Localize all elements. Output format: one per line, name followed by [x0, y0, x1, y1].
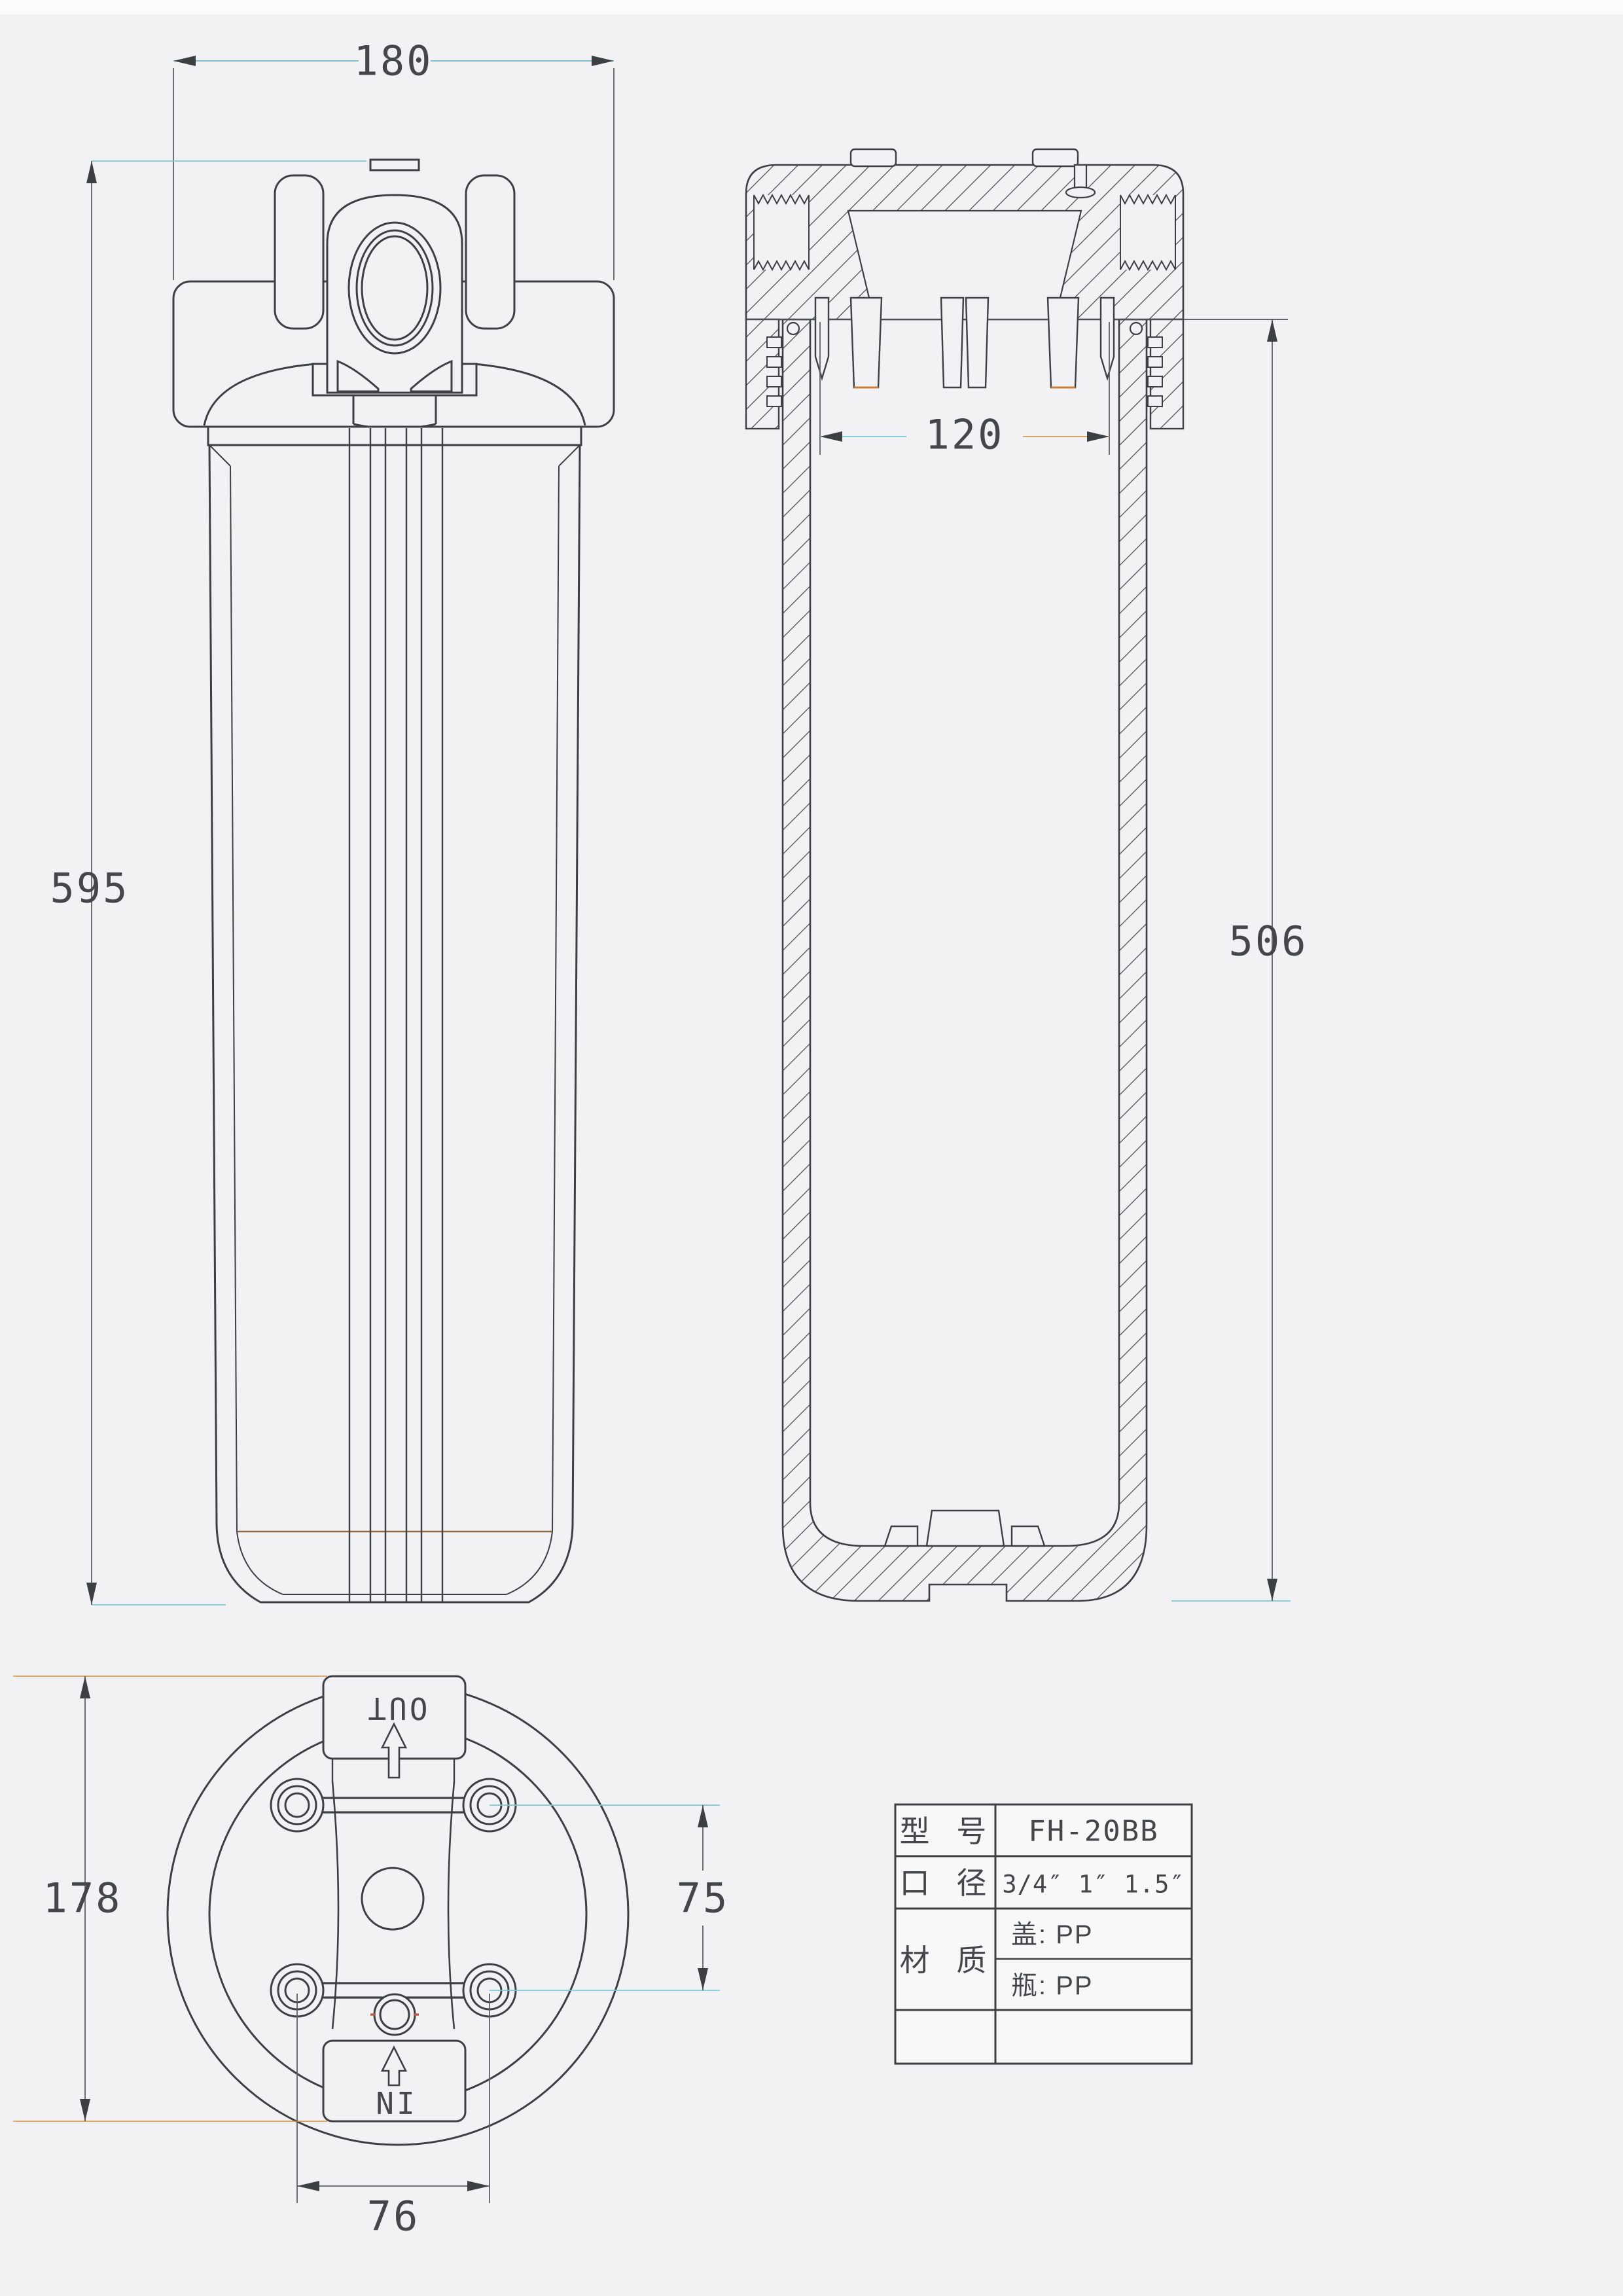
boss-top-tab	[370, 160, 419, 170]
section-bottom-foot-left	[885, 1526, 918, 1546]
bottle-front	[209, 445, 580, 1602]
cap-lug-left	[851, 149, 896, 166]
cap-lug-right	[1033, 149, 1078, 166]
title-caliber-value: 3/4″ 1″ 1.5″	[1002, 1871, 1185, 1899]
bolt-holes	[271, 1779, 516, 2017]
in-label: IN	[373, 2085, 414, 2120]
bottle-ribs	[349, 428, 442, 1602]
title-caliber-label: 口 径	[900, 1866, 996, 1900]
bottom-view: OUT IN 178 75	[13, 1676, 729, 2240]
drawing-sheet: 180 595	[0, 0, 1623, 2296]
technical-drawing: 180 595	[0, 0, 1623, 2296]
cap-ear-right	[466, 175, 514, 329]
out-label: OUT	[365, 1691, 427, 1726]
dim-75-label: 75	[677, 1874, 730, 1922]
center-hole	[362, 1868, 423, 1929]
title-model-value: FH-20BB	[1028, 1815, 1158, 1848]
section-cap-skirt-left	[746, 319, 779, 429]
oring-left	[787, 323, 799, 334]
title-material-cap: 盖: PP	[1011, 1920, 1094, 1949]
neck-band	[208, 427, 581, 445]
title-block: 型 号 FH-20BB 口 径 3/4″ 1″ 1.5″ 材 质 盖: PP 瓶…	[895, 1804, 1192, 2064]
vent-screw-head	[1066, 187, 1095, 198]
dim-180-label: 180	[354, 37, 433, 85]
section-view: 120 506	[746, 149, 1308, 1601]
dim-76-label: 76	[367, 2193, 420, 2240]
section-bottom-foot-right	[1012, 1526, 1044, 1546]
title-material-label: 材 质	[900, 1943, 996, 1977]
title-model-label: 型 号	[900, 1814, 996, 1848]
section-cap-skirt-right	[1150, 319, 1183, 429]
oring-right	[1130, 323, 1142, 334]
section-port-bore-left	[754, 195, 809, 270]
cap-ear-left	[275, 175, 323, 329]
vent-screw-shank	[1075, 165, 1086, 188]
dim-120-label: 120	[925, 411, 1005, 459]
front-view: 180 595	[50, 37, 614, 1605]
dim-178-label: 178	[43, 1874, 122, 1922]
section-bottle-wall	[783, 319, 1147, 1601]
clamp-bars	[306, 1798, 484, 1998]
section-port-bore-right	[1120, 195, 1175, 270]
center-band	[332, 1782, 454, 2029]
section-bottom-boss	[927, 1511, 1004, 1546]
dim-595-label: 595	[50, 865, 130, 912]
dim-506-label: 506	[1229, 918, 1308, 965]
section-cap-cavity	[848, 211, 1081, 319]
boss-body	[327, 195, 462, 393]
title-material-bottle: 瓶: PP	[1011, 1971, 1094, 2000]
